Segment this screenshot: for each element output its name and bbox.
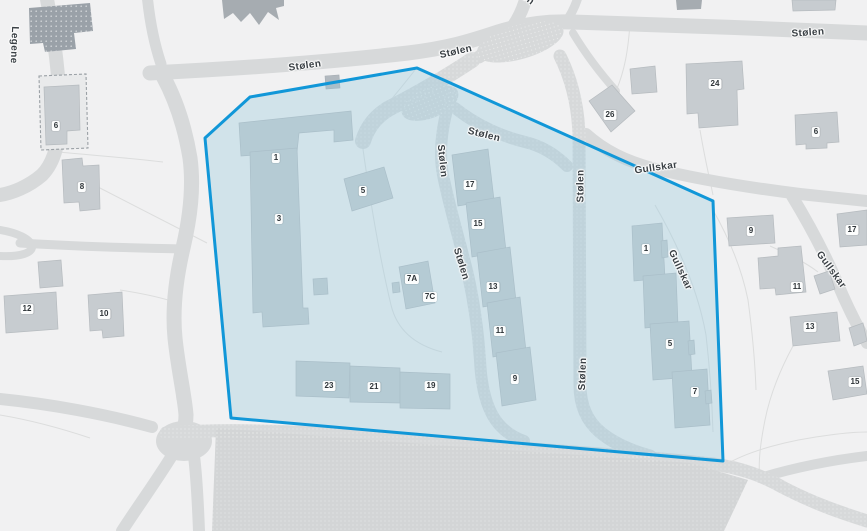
building-number-badge: 15: [472, 219, 485, 229]
building-number-badge: 3: [275, 214, 283, 224]
building-number-badge: 8: [78, 182, 86, 192]
building-number-badge: 9: [511, 374, 519, 384]
building-small-26b: [630, 66, 657, 94]
building-number-badge: 1: [272, 153, 280, 163]
building-number-badge: 5: [666, 339, 674, 349]
street-label-stolen-topright: Stølen: [791, 26, 825, 39]
building-number-badge: 5: [359, 186, 367, 196]
building-number-badge: 9: [747, 226, 755, 236]
building-number-badge: 6: [52, 121, 60, 131]
building-number-badge: 11: [494, 326, 506, 336]
building-small-left: [38, 260, 63, 288]
building-number-badge: 7: [691, 387, 699, 397]
building-number-badge: 17: [464, 180, 477, 190]
building-number-badge: 6: [812, 127, 820, 137]
building-number-badge: 21: [368, 382, 381, 392]
building-number-badge: 26: [604, 110, 617, 120]
building-number-badge: 10: [98, 309, 111, 319]
building-number-badge: 23: [323, 381, 336, 391]
building-stub-dark: [676, 0, 702, 10]
map-canvas[interactable]: Legene Stølen Stølen Stølen Stølen Støle…: [0, 0, 867, 531]
building-number-badge: 1: [642, 244, 650, 254]
building-number-badge: 19: [425, 381, 438, 391]
map-svg: [0, 0, 867, 531]
street-label-stolen-mid-vertical: Stølen: [576, 170, 587, 203]
building-stub-topright: [792, 0, 836, 11]
building-number-badge: 13: [804, 322, 817, 332]
street-label-stolen-lower-vertical: Stølen: [577, 357, 589, 390]
building-number-badge: 24: [709, 79, 722, 89]
building-number-badge: 7A: [405, 274, 419, 284]
building-number-badge: 17: [846, 225, 859, 235]
building-number-badge: 7C: [423, 292, 437, 302]
building-number-badge: 15: [849, 377, 862, 387]
building-number-badge: 11: [791, 282, 803, 292]
building-number-badge: 12: [21, 304, 34, 314]
street-label-legene: Legene: [8, 26, 20, 64]
building-number-badge: 13: [487, 282, 500, 292]
